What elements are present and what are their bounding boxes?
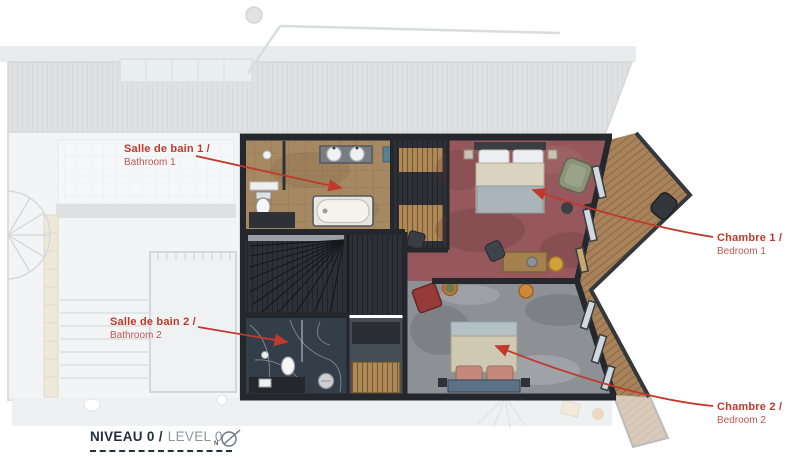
level-legend: NIVEAU 0 /LEVEL 0 [90,428,232,452]
label-bedroom-2-fr: Chambre 2 / [717,401,782,414]
lower-level-band [12,398,612,426]
label-bedroom-1-en: Bedroom 1 [717,246,782,258]
roof-planks [8,62,632,132]
shelf-dark [352,322,400,344]
deck-faded [613,394,668,447]
side-chair [406,230,426,250]
bathroom-1-room [246,140,392,232]
roof-edge-line [280,26,560,33]
sink [259,379,271,387]
pouf [549,257,563,271]
nightstand [521,378,530,387]
chimney [246,7,262,23]
label-bathroom-1-en: Bathroom 1 [124,157,210,169]
ladder-strip [44,215,58,397]
north-compass-icon: N [212,429,244,451]
landing-band [56,204,236,218]
pouf [519,284,533,298]
side-table [561,202,573,214]
label-bedroom-1: Chambre 1 / Bedroom 1 [717,232,782,257]
label-bedroom-2-en: Bedroom 2 [717,415,782,427]
compass-north-label: N [214,441,218,447]
label-bathroom-1-fr: Salle de bain 1 / [124,143,210,156]
pillow [456,366,482,381]
label-bathroom-2-fr: Salle de bain 2 / [110,316,196,329]
legend-dashed-line [90,450,232,452]
shower-head [262,352,269,359]
pendant-light [263,151,271,159]
level-title-fr: NIVEAU 0 / [90,429,163,444]
bed-headboard [448,380,520,392]
label-bathroom-1: Salle de bain 1 / Bathroom 1 [124,143,210,168]
desk [503,252,547,272]
entry-nook [348,318,405,397]
pillow [487,366,513,381]
stairs-and-hall [246,232,405,315]
floor-plan-drawing [0,0,800,465]
nightstand [548,150,557,159]
desk-lamp [527,257,537,267]
bathroom-2-room [246,318,348,397]
skylight [120,59,252,82]
label-bathroom-2-en: Bathroom 2 [110,330,196,342]
bed-headboard [474,142,546,150]
shelf [250,182,278,190]
label-bedroom-1-fr: Chambre 1 / [717,232,782,245]
label-bathroom-2: Salle de bain 2 / Bathroom 2 [110,316,196,341]
bath-counter [249,212,295,228]
floor-plan-page: Salle de bain 1 / Bathroom 1 Salle de ba… [0,0,800,465]
vanity [249,377,305,393]
roof-ridge [0,46,636,62]
wood-bench [352,362,400,393]
nightstand [438,378,447,387]
nightstand [464,150,473,159]
toilet [282,357,295,375]
label-bedroom-2: Chambre 2 / Bedroom 2 [717,401,782,426]
